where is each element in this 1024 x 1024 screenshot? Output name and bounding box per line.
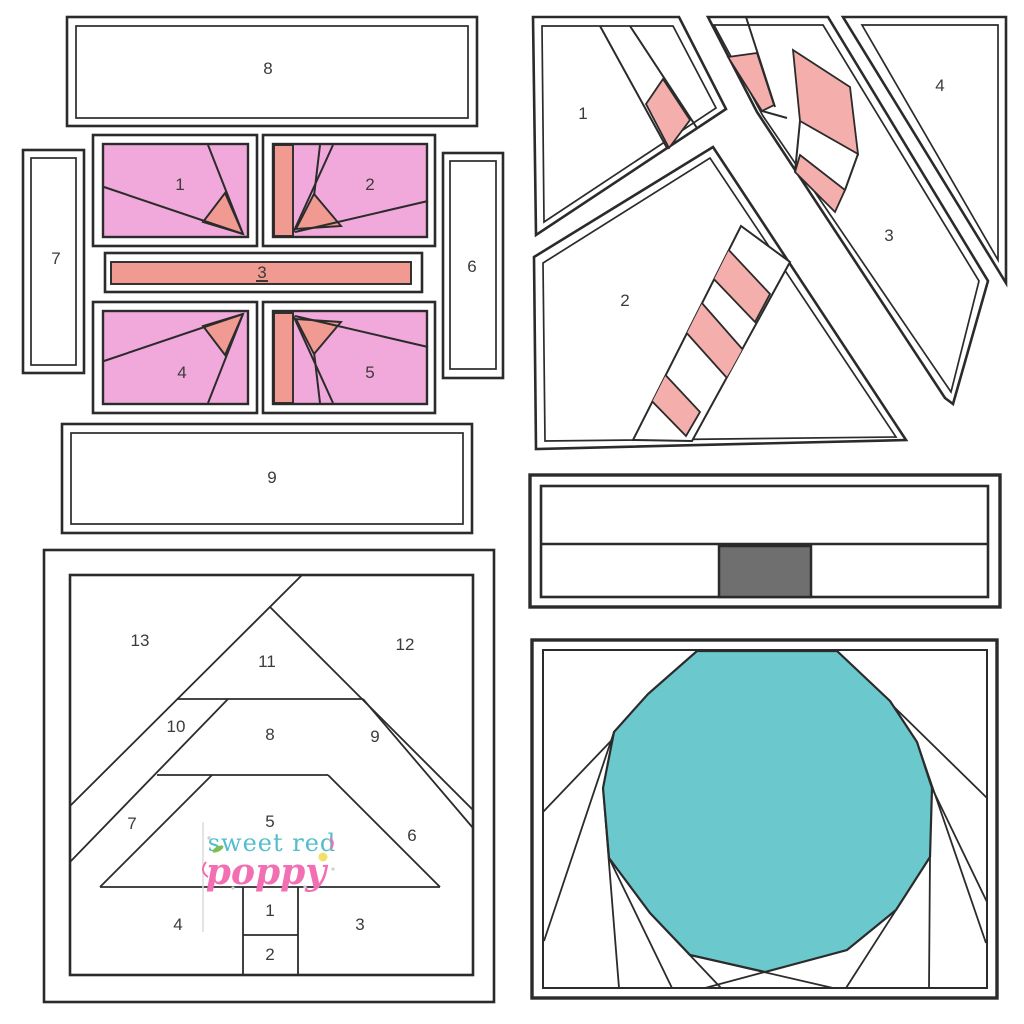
piece-label-8: 8	[265, 725, 274, 744]
fabric-area-pink	[273, 144, 427, 237]
tree-line	[100, 775, 212, 887]
piece-label-3: 3	[257, 263, 266, 282]
logo-sparkle	[303, 885, 306, 888]
sew-line	[845, 154, 858, 190]
piece-label-2: 2	[620, 291, 629, 310]
piece-label-12: 12	[396, 635, 415, 654]
fold-line	[929, 857, 930, 988]
tree-line	[363, 699, 473, 828]
seam-line	[542, 26, 716, 222]
piece-label-8: 8	[263, 59, 272, 78]
piece-outline	[533, 17, 726, 235]
piece-label-10: 10	[167, 717, 186, 736]
piece-label-4: 4	[935, 76, 944, 95]
fabric-area-pink	[273, 311, 427, 404]
ornament-block	[532, 640, 997, 998]
piece-label-9: 9	[370, 727, 379, 746]
piece-label-6: 6	[407, 826, 416, 845]
tree-line	[70, 575, 302, 806]
sweet-red-poppy-logo: sweet red poppy	[203, 829, 336, 893]
sew-line	[762, 111, 787, 118]
logo-dot-icon	[319, 853, 328, 862]
logo-sparkle	[331, 867, 334, 870]
piece-label-11: 11	[258, 652, 276, 671]
logo-sparkle	[207, 836, 210, 839]
piece-label-13: 13	[131, 631, 150, 650]
tree-block: 1 2 3 4 5 6 7 8 9 10 11 12 13 sweet red …	[44, 550, 494, 1002]
candy-cane-block: 1 4 3 2	[533, 17, 1006, 449]
pattern-canvas: 8 7 6 9 1 2 3	[0, 0, 1024, 1024]
piece-label-7: 7	[51, 249, 60, 268]
logo-text-poppy: poppy	[206, 851, 329, 893]
piece-label-1: 1	[265, 901, 274, 920]
tree-line	[328, 775, 440, 887]
logo-sparkle	[231, 886, 234, 889]
piece-label-4: 4	[173, 915, 182, 934]
fabric-area-salmon	[274, 313, 293, 403]
piece-label-5: 5	[365, 363, 374, 382]
gift-box-block: 8 7 6 9 1 2 3	[23, 17, 503, 533]
piece-label-2: 2	[265, 945, 274, 964]
piece-outline	[843, 17, 1006, 283]
piece-label-7: 7	[127, 814, 136, 833]
piece-label-2: 2	[365, 175, 374, 194]
piece-label-1: 1	[578, 104, 587, 123]
piece-label-4: 4	[177, 363, 186, 382]
piece-label-3: 3	[355, 915, 364, 934]
piece-label-9: 9	[267, 468, 276, 487]
gray-square	[719, 546, 811, 597]
pattern-sheet: 8 7 6 9 1 2 3	[0, 0, 1024, 1024]
piece-label-6: 6	[467, 257, 476, 276]
seam-line	[862, 25, 998, 260]
fabric-area-salmon	[274, 145, 293, 236]
piece-label-3: 3	[884, 226, 893, 245]
strip-block	[530, 475, 1000, 607]
piece-label-1: 1	[175, 175, 184, 194]
